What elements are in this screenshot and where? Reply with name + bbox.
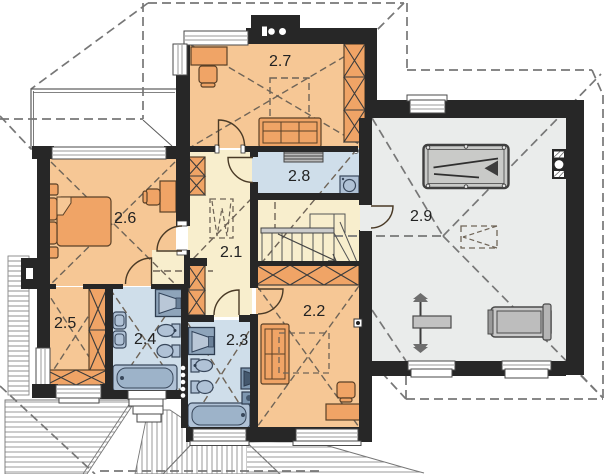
svg-text:2.9: 2.9 — [410, 208, 432, 225]
svg-text:2.2: 2.2 — [303, 303, 325, 320]
svg-text:2.3: 2.3 — [226, 332, 248, 349]
svg-text:2.5: 2.5 — [54, 315, 76, 332]
svg-text:2.7: 2.7 — [269, 53, 291, 70]
svg-text:2.1: 2.1 — [220, 244, 242, 261]
svg-text:2.8: 2.8 — [288, 168, 310, 185]
svg-text:2.4: 2.4 — [134, 331, 156, 348]
svg-text:2.6: 2.6 — [114, 210, 136, 227]
